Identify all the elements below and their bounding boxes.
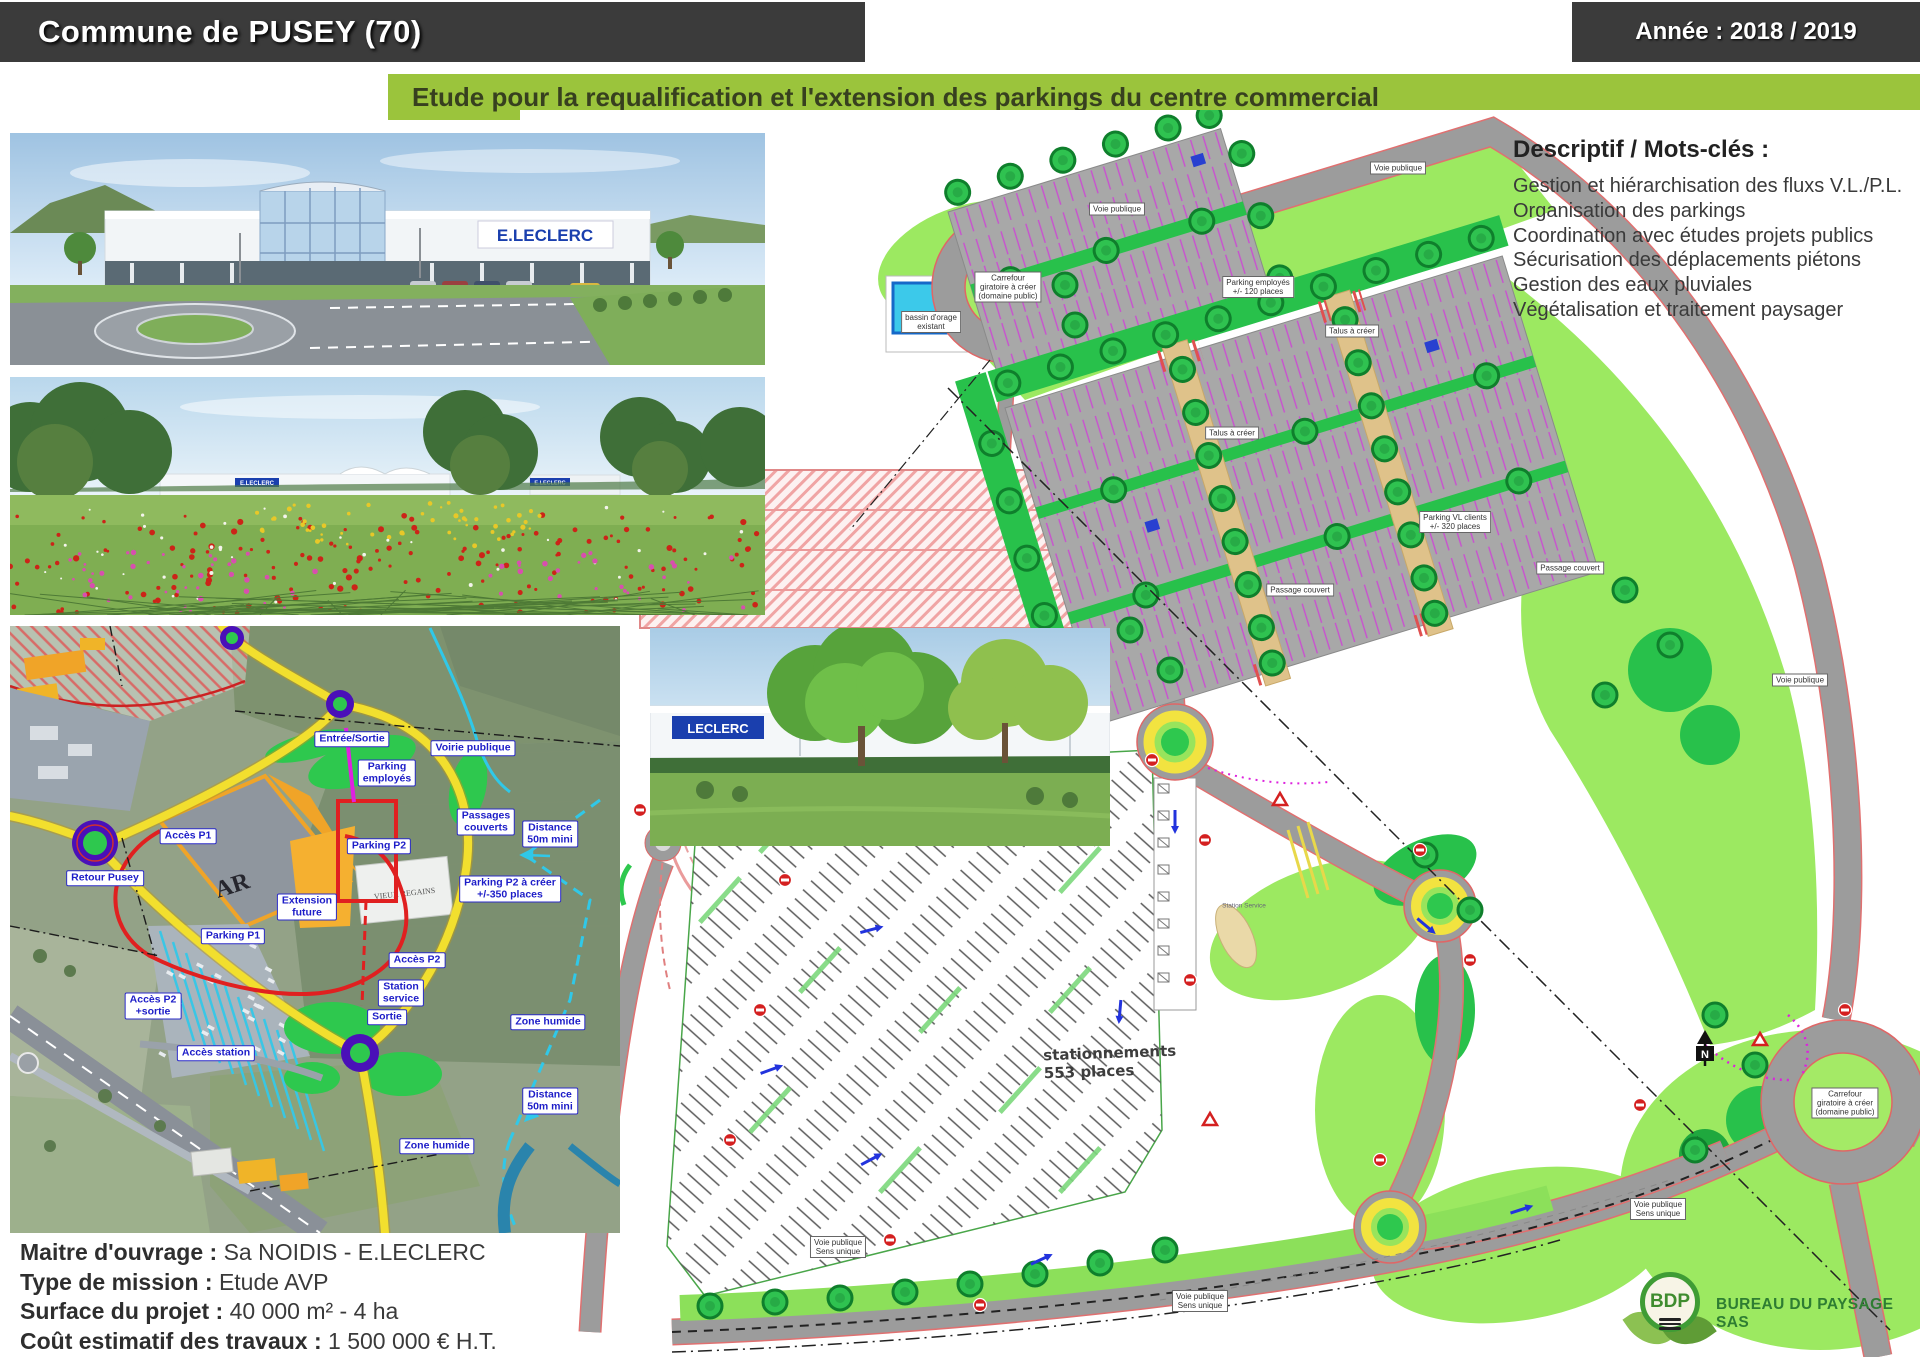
aerial-diagnostic-map: AR VIEUX REGAINS: [10, 626, 620, 1233]
descriptif-item: Organisation des parkings: [1513, 199, 1913, 224]
descriptif-title: Descriptif / Mots-clés :: [1513, 136, 1913, 164]
page-title: Commune de PUSEY (70): [0, 2, 865, 62]
bulb-base-icon: [1659, 1316, 1681, 1332]
info-type-mission: Type de mission : Etude AVP: [20, 1268, 497, 1298]
descriptif-item: Gestion et hiérarchisation des fluxs V.L…: [1513, 174, 1913, 199]
leclerc-sign: E.LECLERC: [497, 226, 593, 245]
photo-meadow: E.LECLERC E.LECLERC: [10, 377, 765, 615]
info-surface: Surface du projet : 40 000 m² - 4 ha: [20, 1297, 497, 1327]
descriptif-item: Coordination avec études projets publics: [1513, 224, 1913, 249]
descriptif-item: Végétalisation et traitement paysager: [1513, 298, 1913, 323]
descriptif-item: Sécurisation des déplacements piétons: [1513, 248, 1913, 273]
company-name: BUREAU DU PAYSAGE SAS: [1716, 1296, 1910, 1332]
bureau-du-paysage-logo: BDP BUREAU DU PAYSAGE SAS: [1630, 1272, 1910, 1352]
year-badge: Année : 2018 / 2019: [1572, 2, 1920, 62]
info-maitre-ouvrage: Maitre d'ouvrage : Sa NOIDIS - E.LECLERC: [20, 1238, 497, 1268]
leclerc-sign-inset: LECLERC: [687, 721, 749, 736]
info-cout: Coût estimatif des travaux : 1 500 000 €…: [20, 1327, 497, 1357]
project-info-block: Maitre d'ouvrage : Sa NOIDIS - E.LECLERC…: [20, 1238, 497, 1356]
north-arrow-label: N: [1701, 1049, 1709, 1061]
photo-storefront: E.LECLERC: [10, 133, 765, 365]
descriptif-item: Gestion des eaux pluviales: [1513, 273, 1913, 298]
project-sheet-page: Commune de PUSEY (70) Année : 2018 / 201…: [0, 0, 1920, 1357]
descriptif-block: Descriptif / Mots-clés : Gestion et hiér…: [1513, 136, 1913, 323]
photo-inset-trees: LECLERC: [650, 628, 1110, 846]
